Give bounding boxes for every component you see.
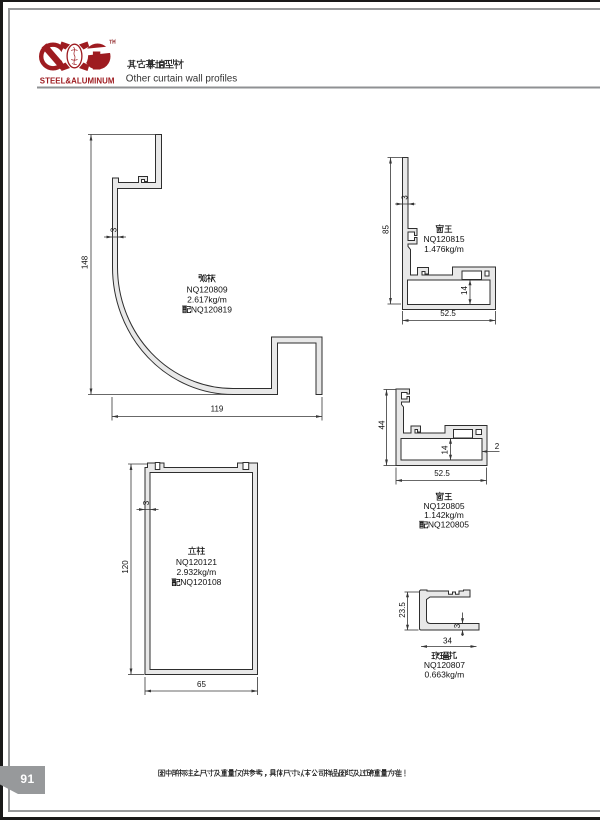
svg-text:65: 65 (197, 680, 206, 689)
svg-text:Other curtain wall profiles: Other curtain wall profiles (126, 73, 237, 84)
svg-text:34: 34 (443, 637, 452, 646)
svg-text:52.5: 52.5 (440, 309, 456, 318)
svg-text:NQ120819: NQ120819 (191, 304, 232, 314)
svg-text:STEEL&ALUMINUM: STEEL&ALUMINUM (40, 77, 115, 86)
svg-text:119: 119 (211, 405, 224, 414)
svg-text:NQ120805: NQ120805 (428, 520, 469, 530)
svg-text:NQ120809: NQ120809 (186, 284, 227, 294)
svg-text:23.5: 23.5 (398, 602, 407, 618)
svg-text:3: 3 (453, 623, 462, 628)
svg-text:85: 85 (381, 225, 390, 234)
svg-text:3: 3 (110, 227, 119, 232)
svg-text:52.5: 52.5 (434, 469, 450, 478)
svg-text:3: 3 (400, 195, 409, 200)
svg-text:2: 2 (495, 442, 500, 451)
svg-text:NQ120121: NQ120121 (176, 557, 217, 567)
svg-text:44: 44 (377, 420, 386, 429)
svg-text:120: 120 (121, 560, 130, 574)
svg-text:1.142kg/m: 1.142kg/m (424, 510, 464, 520)
svg-text:NQ120815: NQ120815 (423, 234, 464, 244)
svg-text:148: 148 (80, 255, 89, 269)
svg-text:2.932kg/m: 2.932kg/m (177, 567, 217, 577)
svg-text:1.476kg/m: 1.476kg/m (424, 244, 464, 254)
svg-text:0.663kg/m: 0.663kg/m (425, 670, 465, 680)
svg-text:3: 3 (142, 500, 151, 505)
svg-text:14: 14 (440, 445, 449, 454)
svg-text:2.617kg/m: 2.617kg/m (187, 295, 227, 305)
svg-text:14: 14 (460, 286, 469, 295)
svg-text:NQ120108: NQ120108 (180, 577, 221, 587)
svg-text:NQ120807: NQ120807 (424, 660, 465, 670)
